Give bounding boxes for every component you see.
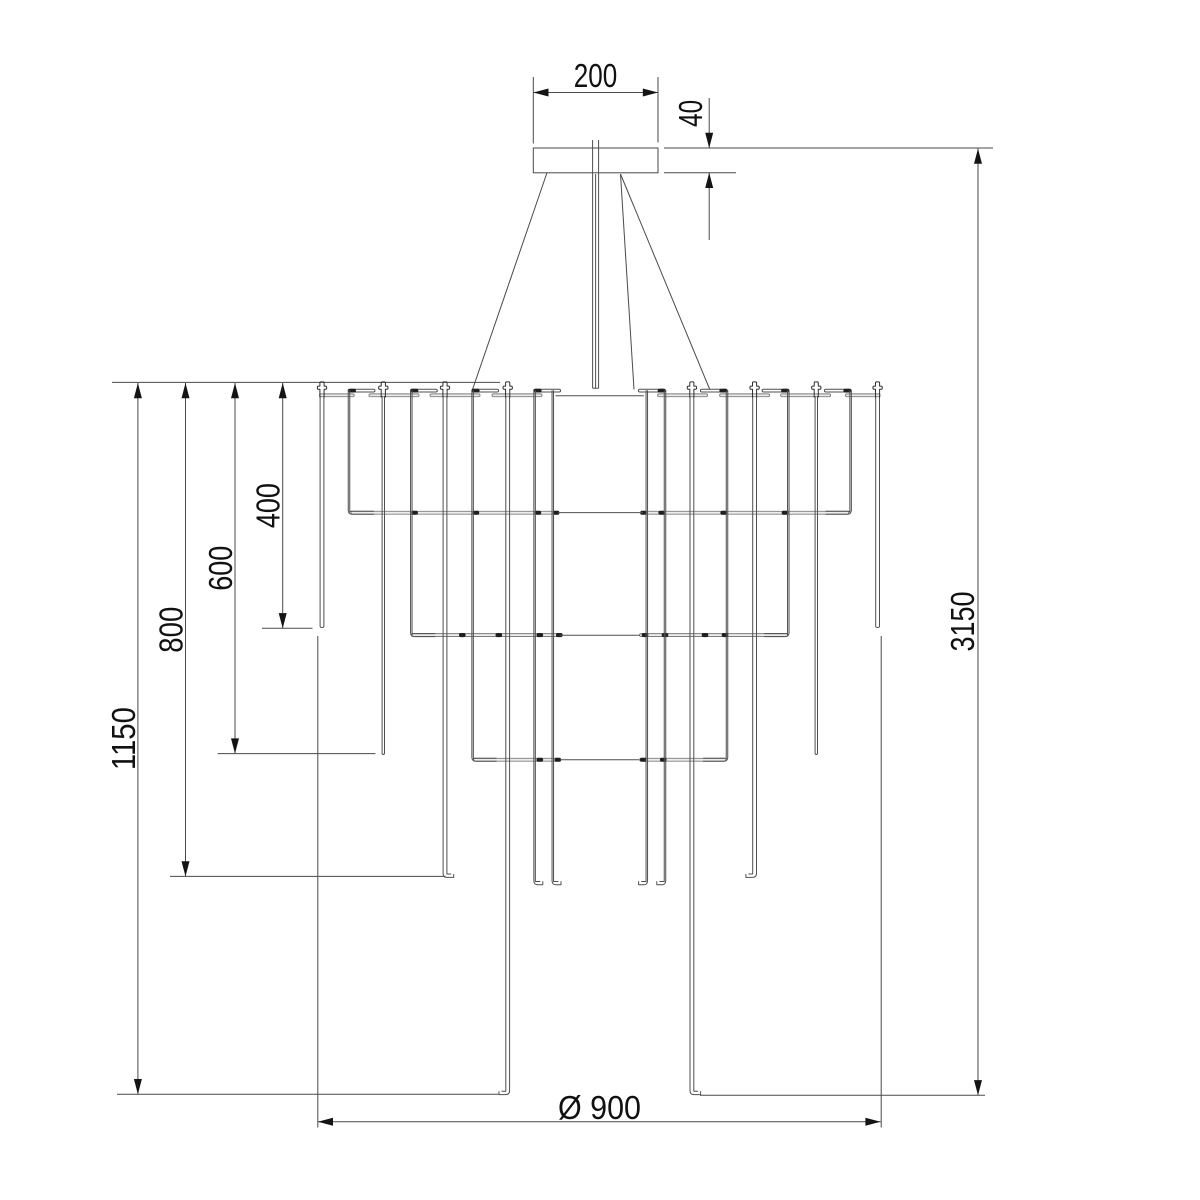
svg-text:200: 200	[574, 57, 618, 94]
svg-text:600: 600	[202, 546, 239, 591]
svg-text:Ø 900: Ø 900	[558, 1089, 641, 1126]
svg-text:3150: 3150	[944, 592, 981, 652]
svg-text:400: 400	[250, 483, 287, 528]
svg-text:1150: 1150	[105, 707, 142, 770]
svg-text:800: 800	[153, 607, 190, 653]
svg-text:40: 40	[672, 100, 709, 127]
